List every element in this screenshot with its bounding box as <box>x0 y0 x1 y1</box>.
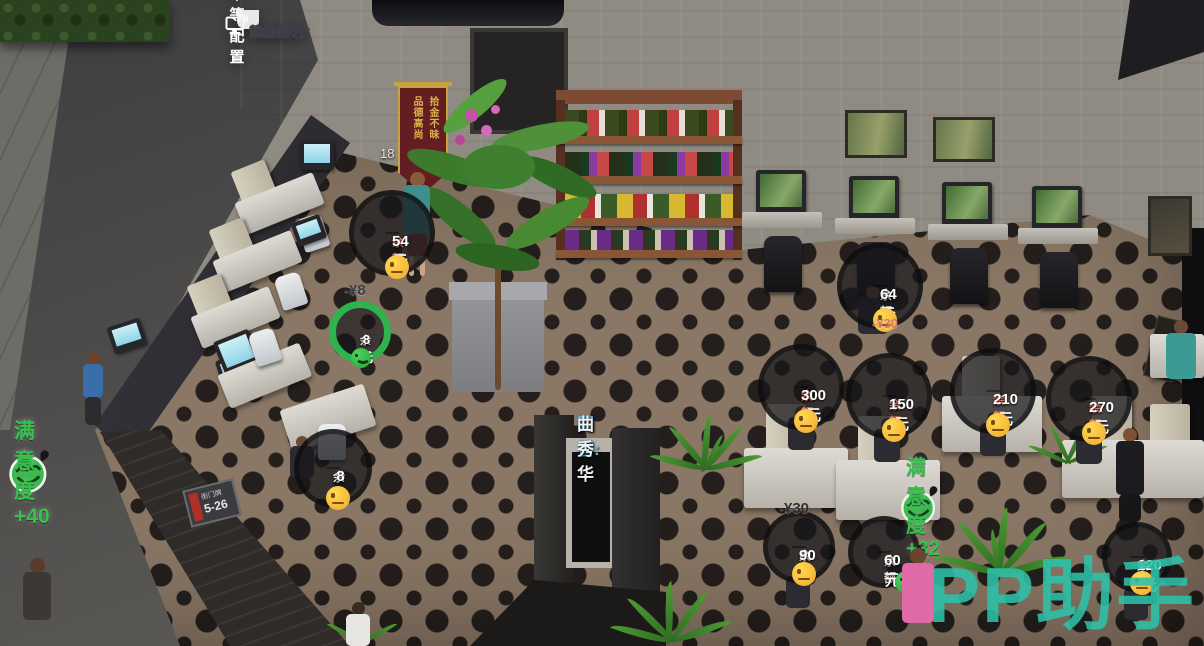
desk <box>928 224 1008 240</box>
machine-number: 18 <box>380 146 394 161</box>
tooltip-body: 价格：¥36/小时 吸引力：20 累计收入：¥2466 维护费：¥120/天 状… <box>237 10 259 29</box>
person-torso <box>23 572 51 620</box>
tooltip-row-value: 64% <box>249 19 277 45</box>
balance-bubble: 余额 150元 <box>846 353 932 439</box>
monitor-screen <box>112 322 142 346</box>
balance-textbox: 余额 300元 <box>794 386 808 388</box>
neutral-face-icon <box>1082 421 1106 445</box>
person-torso <box>83 364 103 398</box>
monitor-screen <box>296 219 321 240</box>
satisfaction-text: 满意度+40 <box>14 415 50 529</box>
hedge <box>0 0 170 42</box>
monitor-screen <box>853 180 895 213</box>
person-torso <box>1116 441 1144 495</box>
entrance-pillar <box>612 428 660 600</box>
person-torso <box>1166 333 1196 379</box>
person-legs <box>85 397 101 425</box>
banner-rod <box>394 82 452 86</box>
neutral-face-icon <box>882 418 906 442</box>
balance-textbox: 余额 150元 <box>882 395 896 397</box>
picture-frame <box>845 110 907 158</box>
crt-monitor <box>756 170 806 214</box>
person-legs <box>1119 494 1141 522</box>
game-viewport: 街门牌 5-26 18 拾金不昧 品德高尚 <box>0 0 1204 646</box>
balance-textbox: 余额 54元 <box>385 232 399 234</box>
monitor-screen <box>760 174 802 207</box>
person-head <box>1123 428 1137 442</box>
person-head <box>30 558 45 573</box>
person-pedestrian[interactable] <box>342 602 374 646</box>
black-chair <box>1040 252 1078 308</box>
staff-name: 曲秀华 <box>577 410 594 485</box>
happy-face-icon <box>351 348 371 368</box>
crt-monitor <box>942 182 992 226</box>
balance-bubble: 余额 54元 <box>349 190 435 276</box>
satisfaction-text: 满意度+32 <box>906 451 940 561</box>
crt-monitor <box>849 176 899 220</box>
monitor-screen <box>946 186 988 219</box>
desk <box>1018 228 1098 244</box>
picture-frame <box>1148 196 1192 256</box>
balance-bubble: 余额 210元 <box>950 348 1036 434</box>
neutral-face-icon <box>792 562 816 586</box>
balance-bubble: 余额 300元 <box>758 344 844 430</box>
computer-station[interactable] <box>1018 186 1098 336</box>
payment-float: -¥8 <box>344 282 366 299</box>
computer-station[interactable] <box>928 182 1008 332</box>
person-customer-suit[interactable] <box>1112 428 1148 526</box>
black-chair <box>950 248 988 304</box>
parked-car <box>372 0 564 26</box>
balance-bubble: 余额 90元 <box>763 511 835 583</box>
person-pedestrian[interactable] <box>20 558 54 646</box>
balance-textbox: 余额 90元 <box>792 546 806 548</box>
watermark: PP助手 <box>928 556 1196 634</box>
balance-textbox: 余额 210元 <box>986 390 1000 392</box>
balance-bubble: 余额 8元 <box>294 429 372 507</box>
balance-textbox: 余额 64元 <box>873 285 887 287</box>
computer-station[interactable] <box>742 170 822 320</box>
flower <box>481 125 492 136</box>
crt-monitor <box>1032 186 1082 230</box>
balance-textbox: 余额 60元 <box>877 551 891 553</box>
person-head <box>910 548 926 564</box>
black-chair <box>764 236 802 292</box>
flower <box>455 135 465 145</box>
leaf <box>463 145 535 189</box>
payment-float: -¥30 <box>779 500 809 517</box>
neutral-face-icon <box>794 409 818 433</box>
person-torso <box>346 614 370 646</box>
person-head <box>1174 320 1188 334</box>
balance-textbox: 余额 8元 <box>326 467 340 469</box>
person-seated-customer[interactable] <box>1158 320 1204 392</box>
payment-float: -¥30 <box>872 316 898 331</box>
neutral-face-icon <box>385 255 409 279</box>
desk <box>835 218 915 234</box>
neutral-face-icon <box>326 486 350 510</box>
desk <box>742 212 822 228</box>
balance-bubble: 余额 270元 <box>1046 356 1132 442</box>
neutral-face-icon <box>986 413 1010 437</box>
balance-textbox: 余额 270元 <box>1082 398 1096 400</box>
flower <box>491 105 500 114</box>
monitor-screen <box>1036 190 1078 223</box>
balance-bubble-progress: 余额 8元 <box>329 301 391 363</box>
picture-frame <box>933 117 995 162</box>
flower <box>465 109 478 122</box>
person-pedestrian[interactable] <box>80 352 106 432</box>
